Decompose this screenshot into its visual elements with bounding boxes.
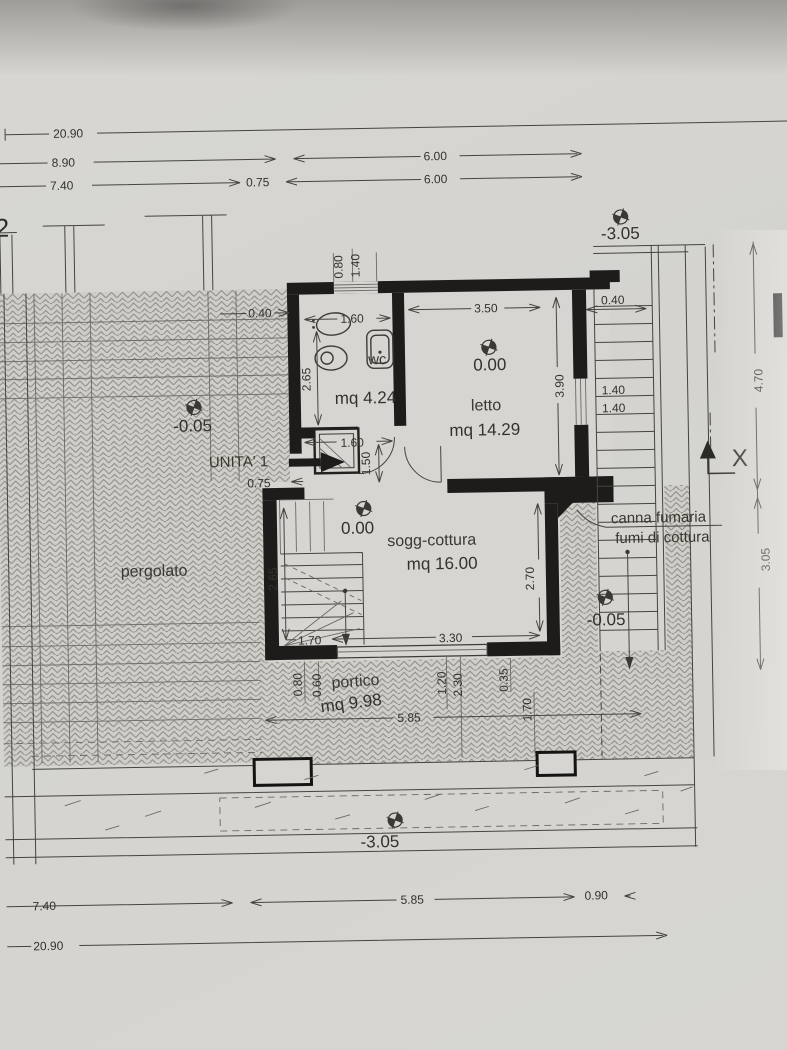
dim-sogg-270: 2.70 xyxy=(523,566,537,590)
flue-note-line2: fumi di cottura xyxy=(615,528,710,547)
flue-note-line1: canna fumaria xyxy=(611,509,707,528)
letto-area: mq 14.29 xyxy=(449,420,520,440)
dim-portico-120: 1.20 xyxy=(435,671,449,695)
section-letter: X xyxy=(732,445,748,472)
section-arrow xyxy=(700,440,716,458)
pillar-right xyxy=(537,752,575,776)
pergola-posts xyxy=(0,215,228,294)
dim-wc-265: 2.65 xyxy=(299,367,313,391)
dim-wc-160-bottom: 1.60 xyxy=(340,435,364,449)
walkway: -3.05 xyxy=(4,750,698,858)
dim-wc-080: 0.80 xyxy=(331,255,345,279)
portico-label: portico xyxy=(331,672,380,692)
entrance-arrow-shaft xyxy=(289,458,321,467)
dim-bottom-090: 0.90 xyxy=(584,888,608,902)
right-section-and-dims: X 4.70 3.05 xyxy=(696,241,787,670)
dim-bottom-740: 7.40 xyxy=(32,899,56,913)
bottom-dimension-chains: 7.40 5.85 0.90 20.90 xyxy=(6,887,667,954)
dim-portico-035: 0.35 xyxy=(497,668,511,692)
dim-letto-390: 3.90 xyxy=(552,374,566,398)
sogg-area: mq 16.00 xyxy=(407,554,478,574)
dim-sogg-265: 2.65 xyxy=(266,567,280,591)
dim-portico-585: 5.85 xyxy=(397,711,421,725)
pergolato-level: -0.05 xyxy=(173,416,212,436)
dim-total-top: 20.90 xyxy=(53,126,84,141)
floor-plan-photo: 20.90 8.90 6.00 7.40 0.75 6.00 -3.05 2 xyxy=(0,0,787,1050)
dim-portico-060: 0.60 xyxy=(310,673,324,697)
dim-sogg-330: 3.30 xyxy=(439,631,463,645)
dim-right-470: 4.70 xyxy=(751,368,765,392)
dim-right-305: 3.05 xyxy=(758,547,772,571)
dim-wc-160-top: 1.60 xyxy=(340,311,364,325)
dim-entry-075: 0.75 xyxy=(247,476,271,490)
floor-plan-drawing: 20.90 8.90 6.00 7.40 0.75 6.00 -3.05 2 xyxy=(0,0,787,1050)
pillar-left xyxy=(254,758,311,785)
letto-level: 0.00 xyxy=(473,355,506,375)
dim-890: 8.90 xyxy=(52,155,76,169)
dim-portico-230: 2.30 xyxy=(451,673,465,697)
dim-600-a: 6.00 xyxy=(423,149,447,163)
dim-075: 0.75 xyxy=(246,175,270,189)
wc-area: mq 4.24 xyxy=(335,388,397,408)
top-dimension-chains: 20.90 8.90 6.00 7.40 0.75 6.00 xyxy=(0,114,787,194)
bottom-level: -3.05 xyxy=(360,832,399,852)
wc-label: wc xyxy=(367,351,387,368)
dim-portico-170: 1.70 xyxy=(520,698,534,722)
dim-entry-150: 1.50 xyxy=(359,451,373,475)
dim-wc-140: 1.40 xyxy=(348,253,362,277)
dim-letto-350: 3.50 xyxy=(474,301,498,315)
unit-label: UNITA' 1 xyxy=(209,453,269,471)
grid-axis-label: 2 xyxy=(0,213,9,243)
dim-stairs-140b: 1.40 xyxy=(602,401,626,415)
dim-sogg-170: 1.70 xyxy=(298,633,322,647)
dim-bottom-585: 5.85 xyxy=(400,893,424,907)
sheet-edge-mark xyxy=(773,293,783,337)
dim-600-b: 6.00 xyxy=(424,172,448,186)
dim-740-top: 7.40 xyxy=(50,179,74,193)
dim-left-040: 0.40 xyxy=(248,306,272,320)
pergolato-label: pergolato xyxy=(121,563,188,581)
letto-label: letto xyxy=(471,397,502,415)
dim-stairs-040: 0.40 xyxy=(601,293,625,307)
level-top-right: -3.05 xyxy=(601,224,640,244)
sogg-level: 0.00 xyxy=(341,518,374,538)
court-level: -0.05 xyxy=(587,610,626,630)
dim-portico-080: 0.80 xyxy=(291,673,305,697)
dim-bottom-2090: 20.90 xyxy=(33,939,64,954)
sogg-label: sogg-cottura xyxy=(387,532,476,551)
dim-stairs-140a: 1.40 xyxy=(602,383,626,397)
